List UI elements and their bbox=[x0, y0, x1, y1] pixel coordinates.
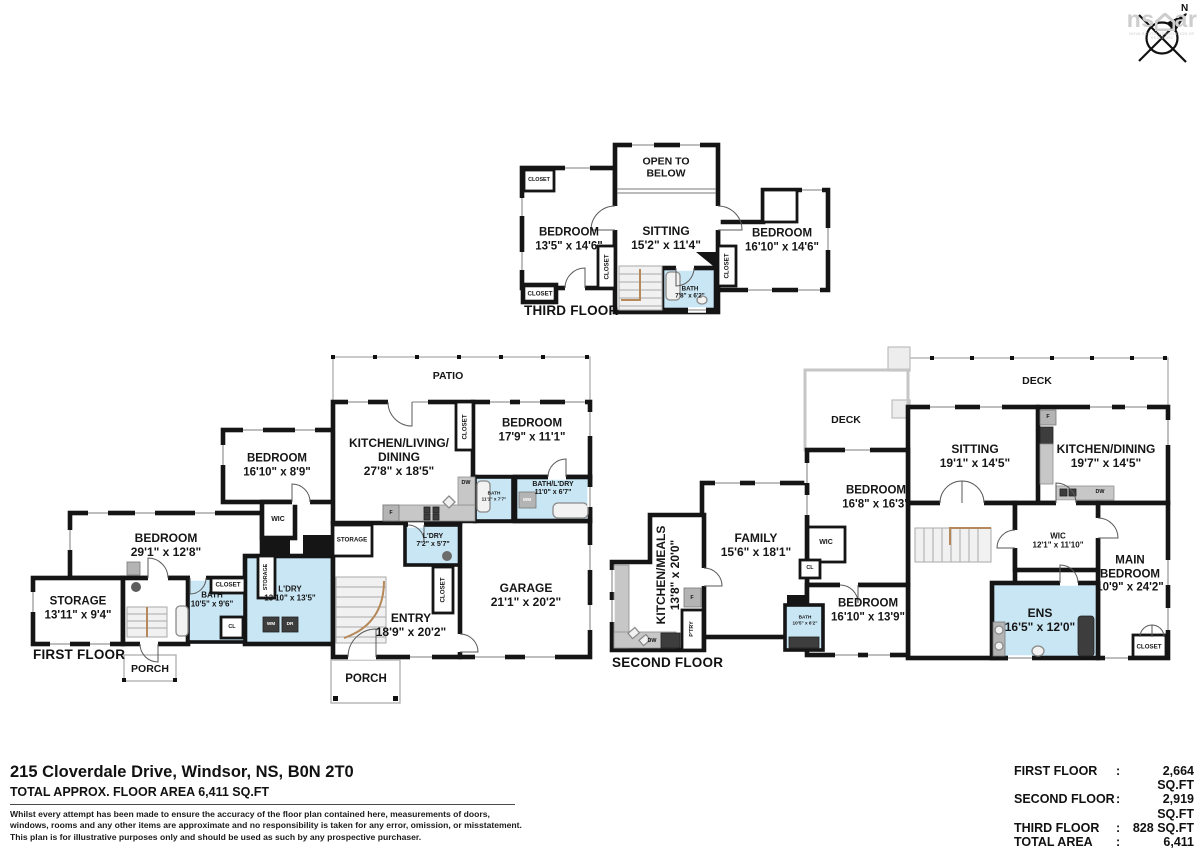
label-garage-1f: GARAGE21'1" x 20'2" bbox=[491, 581, 561, 609]
label-sitting-3f: SITTING15'2" x 11'4" bbox=[631, 224, 701, 252]
label-closet-bath-1f: CLOSET bbox=[215, 581, 240, 588]
room-bedroom-a-2f bbox=[807, 450, 908, 585]
tub-bath2-1f bbox=[176, 606, 188, 636]
label-cl-2f: CL bbox=[806, 565, 813, 571]
label-dw-1f: DW bbox=[462, 480, 471, 486]
wall-mass-a-1f bbox=[303, 535, 333, 558]
label-storage-1f: STORAGE13'11" x 9'4" bbox=[45, 595, 112, 622]
label-dw-kd-2f: DW bbox=[1096, 489, 1105, 495]
label-family-2f: FAMILY15'6" x 18'1" bbox=[721, 531, 791, 559]
label-bath2-1f: BATH10'5" x 9'6" bbox=[191, 591, 234, 610]
label-fridge-2f: F bbox=[1046, 414, 1049, 420]
label-bath-2f: BATH10'5" x 6'2" bbox=[793, 614, 818, 625]
label-porch2-1f: PORCH bbox=[345, 673, 387, 687]
label-closet-entry-1f: CLOSET bbox=[439, 577, 446, 602]
divider-line bbox=[10, 804, 515, 805]
third-floor-title: THIRD FLOOR bbox=[524, 303, 618, 318]
first-floor-title: FIRST FLOOR bbox=[33, 647, 125, 662]
area-row-first: FIRST FLOOR:2,664 SQ.FT bbox=[1014, 764, 1194, 792]
label-kitchen-meals-2f: KITCHEN/MEALS13'8" x 20'0" bbox=[654, 526, 682, 625]
nsar-logo: ns ar NOVA SCOTIA ASSOCIATION OF REALTOR… bbox=[1122, 8, 1200, 40]
label-bath-3f: BATH7'8" x 6'2" bbox=[675, 286, 704, 301]
label-closet-main-2f: CLOSET bbox=[1136, 643, 1161, 650]
label-deck-right-2f: DECK bbox=[1022, 375, 1052, 387]
toilet-ens-2f bbox=[1032, 646, 1044, 656]
tub-bath-2f bbox=[789, 637, 819, 648]
utility-box-1f bbox=[127, 562, 140, 575]
label-bedroom1-1f: BEDROOM17'9" x 11'1" bbox=[499, 417, 566, 444]
label-fridge-1f: F bbox=[389, 510, 392, 516]
label-wm-1f: WM bbox=[267, 621, 275, 627]
closet-bedroom-right-3f bbox=[763, 190, 797, 222]
label-storage-small-1f: STORAGE bbox=[337, 536, 367, 543]
label-wic-1f: WIC bbox=[271, 516, 285, 524]
label-dr-1f: DR bbox=[287, 621, 294, 627]
area-row-second: SECOND FLOOR:2,919 SQ.FT bbox=[1014, 792, 1194, 820]
tub-ens-2f bbox=[1078, 616, 1094, 656]
label-porch1-1f: PORCH bbox=[131, 663, 169, 675]
label-closet-bedroom1: CLOSET bbox=[461, 414, 468, 439]
tub-bath-ldry-1f bbox=[553, 503, 588, 518]
logo-house-icon bbox=[1155, 13, 1175, 31]
label-closet-lv-3f: CLOSET bbox=[603, 254, 610, 279]
label-wm-bath-ldry: WM bbox=[523, 497, 531, 503]
logo-text-left: ns bbox=[1127, 8, 1155, 31]
footer-left: 215 Cloverdale Drive, Windsor, NS, B0N 2… bbox=[10, 763, 590, 843]
floorplan-canvas bbox=[0, 0, 1200, 848]
label-dw-km-2f: DW bbox=[648, 638, 657, 644]
label-bedroom-a-2f: BEDROOM16'8" x 16'3" bbox=[842, 484, 910, 511]
label-bedroom2-1f: BEDROOM16'10" x 8'9" bbox=[243, 452, 311, 479]
oven-2f bbox=[1040, 427, 1053, 444]
label-kitchen-living-dining: KITCHEN/LIVING/DINING27'8" x 18'5" bbox=[349, 436, 449, 478]
label-pantry-2f: P'TRY bbox=[689, 621, 695, 636]
compass-north-label: N bbox=[1181, 3, 1188, 14]
label-ldry-small-1f: L'DRY7'2" x 5'7" bbox=[416, 533, 449, 550]
label-wic-large-2f: WIC12'1" x 11'10" bbox=[1033, 532, 1084, 551]
area-row-total: TOTAL AREA:6,411 SQ.FT bbox=[1014, 835, 1194, 848]
label-wic-small-2f: WIC bbox=[819, 539, 833, 547]
label-bedroom-b-2f: BEDROOM16'10" x 13'9" bbox=[831, 597, 905, 624]
total-area-line: TOTAL APPROX. FLOOR AREA 6,411 SQ.FT bbox=[10, 785, 590, 799]
floor-areas-table: FIRST FLOOR:2,664 SQ.FT SECOND FLOOR:2,9… bbox=[1014, 764, 1194, 848]
label-closet-tl-3f: CLOSET bbox=[528, 177, 550, 183]
label-ens-2f: ENS16'5" x 12'0" bbox=[1005, 606, 1075, 634]
fixture-hall-1f bbox=[131, 582, 141, 592]
area-row-third: THIRD FLOOR:828 SQ.FT bbox=[1014, 821, 1194, 835]
label-cl-1f: CL bbox=[228, 624, 235, 630]
stairs-2f bbox=[915, 528, 991, 562]
label-kitchen-dining-2f: KITCHEN/DINING19'7" x 14'5" bbox=[1057, 442, 1156, 470]
label-bedroom-right-3f: BEDROOM16'10" x 14'6" bbox=[745, 227, 819, 254]
deck-stairs-top bbox=[888, 347, 910, 371]
label-bedroom3-1f: BEDROOM29'1" x 12'8" bbox=[131, 531, 201, 559]
logo-tagline: NOVA SCOTIA ASSOCIATION OF REALTORS bbox=[1122, 32, 1200, 40]
label-entry-1f: ENTRY18'9" x 20'2" bbox=[376, 611, 446, 639]
label-bedroom-left-3f: BEDROOM13'5" x 14'6" bbox=[535, 226, 603, 253]
nsar-logo-wordmark: ns ar bbox=[1122, 8, 1200, 31]
stove-km-2f bbox=[661, 633, 680, 648]
wall-mass-b-1f bbox=[263, 537, 290, 557]
wall-mass-2f bbox=[787, 595, 807, 606]
label-sitting-2f: SITTING19'1" x 14'5" bbox=[940, 442, 1010, 470]
sink-ldry-small-1f bbox=[442, 551, 452, 561]
label-ldry-big-1f: L'DRY13'10" x 13'5" bbox=[264, 585, 315, 604]
label-open-to-below: OPEN TOBELOW bbox=[642, 156, 689, 181]
label-deck-left-2f: DECK bbox=[831, 414, 861, 426]
floorplan-sheet: ns ar NOVA SCOTIA ASSOCIATION OF REALTOR… bbox=[0, 0, 1200, 848]
label-f-km-2f: F bbox=[690, 595, 693, 601]
label-bath-ldry-1f: BATH/L'DRY11'0" x 6'7" bbox=[532, 481, 573, 498]
label-closet-bl-3f: CLOSET bbox=[527, 290, 552, 297]
second-floor-title: SECOND FLOOR bbox=[612, 655, 723, 670]
property-address: 215 Cloverdale Drive, Windsor, NS, B0N 2… bbox=[10, 763, 590, 782]
label-patio: PATIO bbox=[433, 370, 464, 382]
label-closet-rv-3f: CLOSET bbox=[723, 253, 730, 278]
label-bath-small-1f: BATH11'1" x 7'7" bbox=[482, 490, 507, 501]
counter-kd-2f bbox=[1040, 444, 1053, 484]
label-main-bedroom-2f: MAINBEDROOM10'9" x 24'2" bbox=[1096, 555, 1164, 596]
disclaimer-text: Whilst every attempt has been made to en… bbox=[10, 809, 590, 843]
